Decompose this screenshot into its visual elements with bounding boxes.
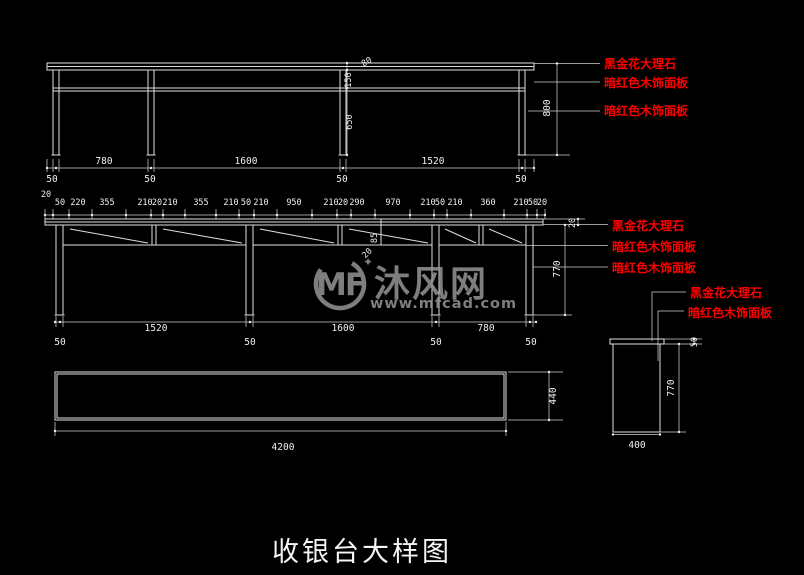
callout-section-wood: 暗红色木饰面板 xyxy=(688,305,773,320)
watermark: MF ✦ 沐风网 www.mfcad.com xyxy=(307,251,517,317)
dim-chain-1: 50 xyxy=(55,198,65,208)
dim-chain-6: 210 xyxy=(162,198,177,208)
plan-view: 4200 440 xyxy=(55,372,563,453)
plan-outline xyxy=(55,372,506,420)
dim-chain-10: 210 xyxy=(253,198,268,208)
dim-front-leg-3: 50 xyxy=(336,174,348,185)
mf-logo-text: MF xyxy=(316,267,364,303)
dim-front-apron-150: 150 xyxy=(344,72,354,87)
callout-counter-marble: 黑金花大理石 xyxy=(612,218,684,233)
dim-plan-4200: 4200 xyxy=(272,442,295,453)
callout-front-wood-1: 暗红色木饰面板 xyxy=(604,75,689,90)
dim-counter-leg-3: 50 xyxy=(430,337,442,348)
dim-chain-22: 20 xyxy=(537,198,547,208)
page-title: 收银台大样图 xyxy=(272,537,452,568)
dim-chain-18: 210 xyxy=(447,198,462,208)
dim-front-leg-1: 50 xyxy=(46,174,58,185)
callout-counter-wood-2: 暗红色木饰面板 xyxy=(612,260,697,275)
side-section-view: 50 770 400 黑金花大理石 暗红色木饰面板 xyxy=(610,285,773,451)
sparkle-icon: ✦ xyxy=(363,255,373,269)
dim-front-leg-650: 650 xyxy=(345,114,355,129)
callout-section-marble: 黑金花大理石 xyxy=(690,285,762,300)
front-outline xyxy=(47,63,534,155)
dim-chain-7: 355 xyxy=(193,198,208,208)
dim-section-770: 770 xyxy=(666,379,677,396)
cad-drawing: 780 1600 1520 50 50 50 50 800 80 150 650… xyxy=(0,0,804,575)
dim-chain-8: 210 xyxy=(223,198,238,208)
front-elevation-view: 780 1600 1520 50 50 50 50 800 80 150 650… xyxy=(46,55,689,185)
counter-elevation-view: 20 50 220 355 210 20 210 355 210 50 210 … xyxy=(41,190,697,348)
watermark-url: www.mfcad.com xyxy=(370,296,517,312)
dim-chain-4: 210 xyxy=(137,198,152,208)
dim-chain-11: 950 xyxy=(286,198,301,208)
dim-chain-2: 220 xyxy=(70,198,85,208)
front-dim-lines xyxy=(47,63,600,172)
dim-counter-leg-4: 50 xyxy=(525,337,537,348)
dim-counter-span-1600: 1600 xyxy=(332,323,355,334)
dim-counter-span-1520: 1520 xyxy=(145,323,168,334)
dim-front-leg-4: 50 xyxy=(515,174,527,185)
dim-counter-leg-2: 50 xyxy=(244,337,256,348)
section-outline xyxy=(610,339,664,432)
dim-front-span-1600: 1600 xyxy=(235,156,258,167)
callout-counter-wood-1: 暗红色木饰面板 xyxy=(612,239,697,254)
dim-chain-19: 360 xyxy=(480,198,495,208)
dim-plan-440: 440 xyxy=(548,387,559,404)
dim-chain-15: 970 xyxy=(385,198,400,208)
dim-front-height-800: 800 xyxy=(542,99,553,116)
dim-chain-20: 210 xyxy=(513,198,528,208)
front-dim-dots xyxy=(47,63,557,168)
dim-counter-top-20: 20 xyxy=(568,218,578,228)
dim-front-span-780: 780 xyxy=(95,156,112,167)
cad-drawing-canvas: 780 1600 1520 50 50 50 50 800 80 150 650… xyxy=(0,0,804,575)
callout-front-wood-2: 暗红色木饰面板 xyxy=(604,103,689,118)
dim-front-top-80: 80 xyxy=(360,55,374,69)
section-dim-dots xyxy=(613,339,694,435)
dim-chain-9: 50 xyxy=(241,198,251,208)
plan-dim-dots xyxy=(55,372,549,431)
dim-chain-0: 20 xyxy=(41,190,51,200)
dim-counter-height-770: 770 xyxy=(552,260,563,277)
dim-chain-16: 210 xyxy=(420,198,435,208)
dim-chain-3: 355 xyxy=(99,198,114,208)
dim-front-span-1520: 1520 xyxy=(422,156,445,167)
dim-section-50: 50 xyxy=(690,337,700,347)
dim-front-leg-2: 50 xyxy=(144,174,156,185)
callout-front-marble: 黑金花大理石 xyxy=(604,56,676,71)
dim-chain-17: 50 xyxy=(435,198,445,208)
dim-shelf-85: 85 xyxy=(370,233,380,243)
dim-chain-14: 290 xyxy=(349,198,364,208)
dim-counter-leg-1: 50 xyxy=(54,337,66,348)
dim-section-400: 400 xyxy=(628,440,645,451)
dim-chain-13: 20 xyxy=(338,198,348,208)
dim-chain-12: 210 xyxy=(323,198,338,208)
dim-chain-5: 20 xyxy=(152,198,162,208)
dim-counter-span-780: 780 xyxy=(477,323,494,334)
plan-dim-lines xyxy=(55,372,563,436)
